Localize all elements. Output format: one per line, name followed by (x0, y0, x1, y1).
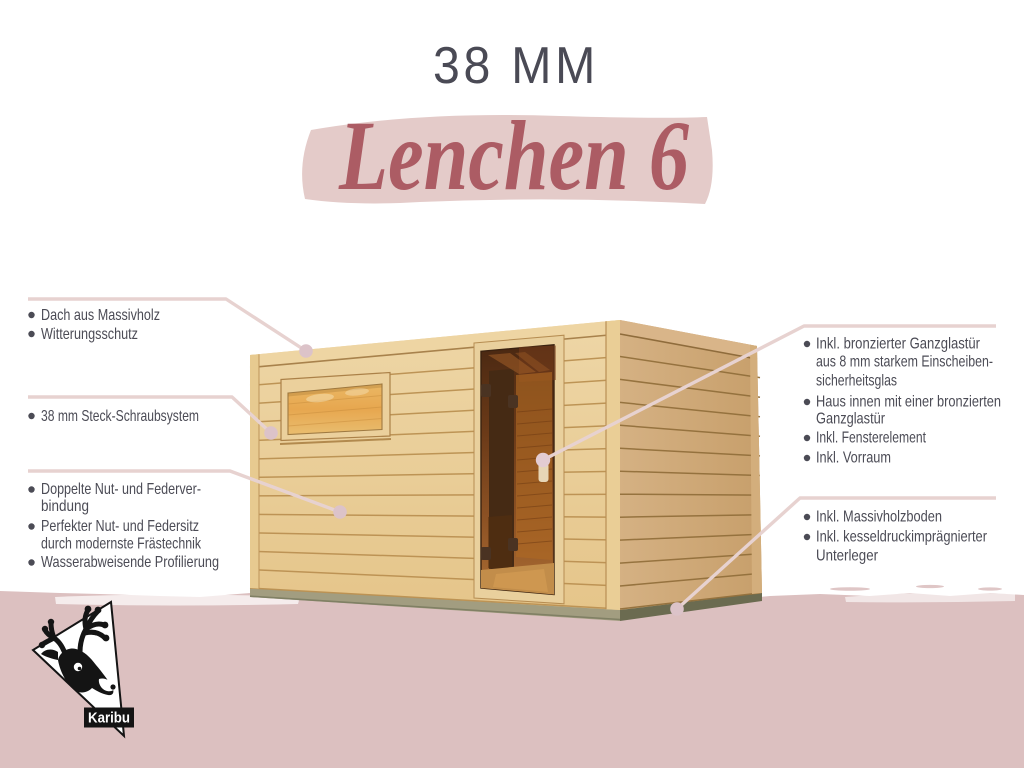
svg-text:38 MM: 38 MM (433, 37, 599, 95)
svg-text:Dach aus Massivholz: Dach aus Massivholz (41, 307, 160, 324)
svg-text:sicherheitsglas: sicherheitsglas (816, 373, 897, 390)
svg-text:Inkl. kesseldruckimprägnierter: Inkl. kesseldruckimprägnierter (816, 529, 988, 546)
svg-text:Ganzglastür: Ganzglastür (816, 411, 886, 428)
svg-text:Doppelte Nut- und Federver-: Doppelte Nut- und Federver- (41, 481, 201, 498)
svg-text:Perfekter Nut- und Federsitz: Perfekter Nut- und Federsitz (41, 518, 199, 535)
svg-text:Unterleger: Unterleger (816, 548, 879, 565)
svg-text:Inkl. Fensterelement: Inkl. Fensterelement (816, 430, 926, 447)
svg-text:bindung: bindung (41, 498, 89, 515)
svg-text:Witterungsschutz: Witterungsschutz (41, 326, 138, 343)
svg-text:Inkl. Massivholzboden: Inkl. Massivholzboden (816, 509, 942, 526)
svg-text:Wasserabweisende Profilierung: Wasserabweisende Profilierung (41, 554, 219, 571)
svg-text:Karibu: Karibu (88, 711, 130, 727)
svg-text:Inkl. bronzierter Ganzglastür: Inkl. bronzierter Ganzglastür (816, 336, 981, 353)
svg-text:Lenchen 6: Lenchen 6 (338, 100, 689, 211)
svg-text:aus 8 mm starkem Einscheiben-: aus 8 mm starkem Einscheiben- (816, 354, 993, 371)
svg-text:38 mm Steck-Schraubsystem: 38 mm Steck-Schraubsystem (41, 408, 199, 425)
svg-text:Inkl. Vorraum: Inkl. Vorraum (816, 450, 891, 467)
svg-text:Haus innen mit einer bronziert: Haus innen mit einer bronzierten (816, 394, 1001, 411)
svg-text:durch modernste Frästechnik: durch modernste Frästechnik (41, 536, 202, 553)
